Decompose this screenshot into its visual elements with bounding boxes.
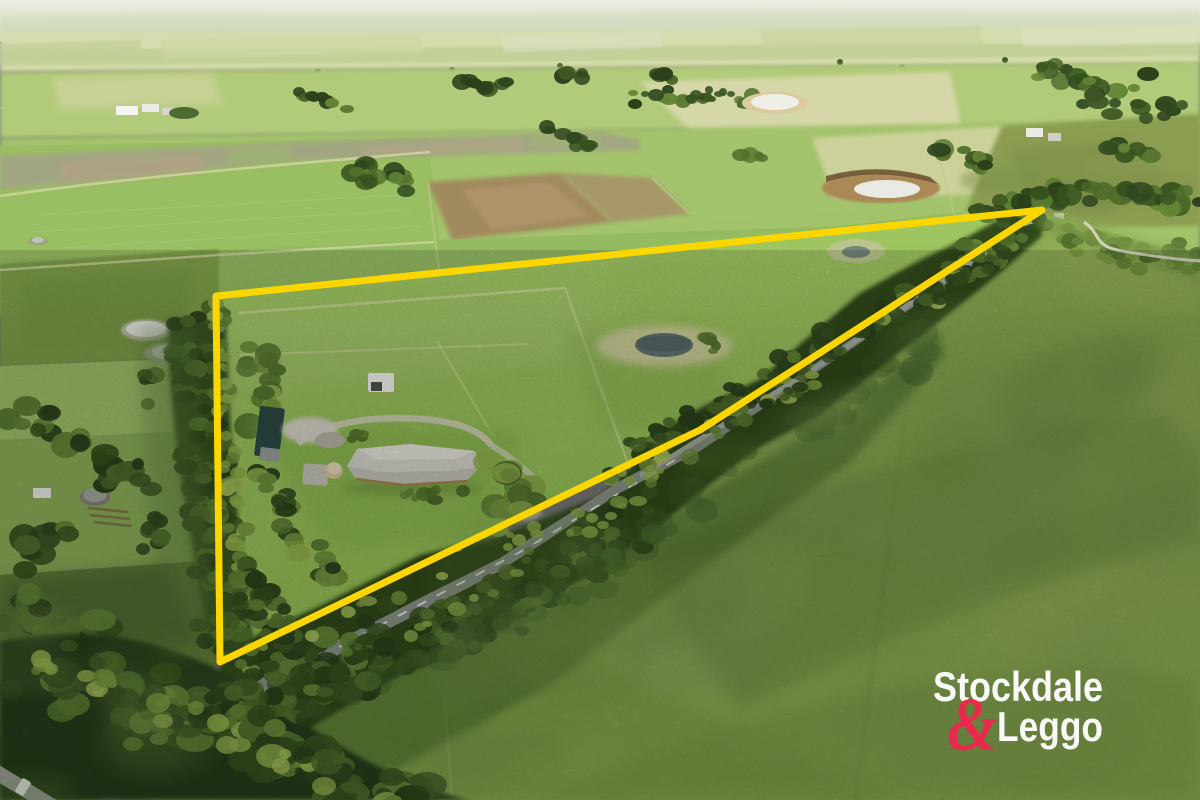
svg-text:Leggo: Leggo [997, 703, 1103, 750]
svg-text:&: & [947, 683, 997, 767]
